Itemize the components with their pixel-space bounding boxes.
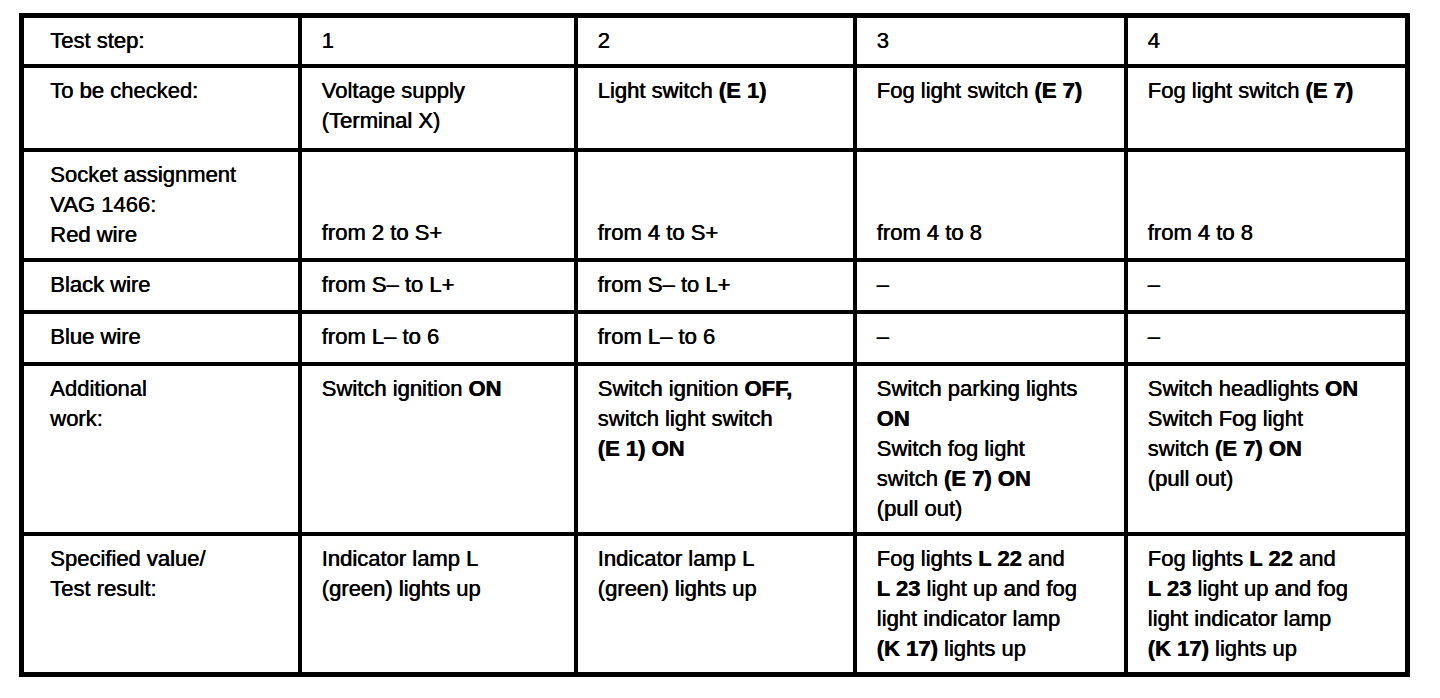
text-line: L 23 light up and fog [877, 574, 1118, 604]
text-line: Fog lights L 22 and [1148, 544, 1400, 574]
text: lights up [938, 636, 1026, 661]
text: switch [1148, 436, 1215, 461]
text: Switch fog light [877, 436, 1025, 461]
text: Additional [50, 376, 147, 401]
text: and [1022, 546, 1065, 571]
text-line: from L– to 6 [598, 322, 847, 352]
row-label-cell-additional-work: Additionalwork: [22, 364, 300, 534]
text-line: Fog light switch (E 7) [877, 76, 1118, 106]
emphasized-text: OFF, [744, 376, 792, 401]
text: from 2 to S+ [322, 220, 442, 245]
text-line: 4 [1148, 26, 1400, 56]
text: VAG 1466: [50, 192, 156, 217]
text: (pull out) [1148, 466, 1234, 491]
text: work: [50, 406, 103, 431]
value-cell-black-wire-step-2: from S– to L+ [576, 260, 855, 312]
text-line: (E 1) ON [598, 434, 847, 464]
emphasized-text: L 23 [877, 576, 921, 601]
text-line: light indicator lamp [1148, 604, 1400, 634]
value-cell-to-be-checked-step-1: Voltage supply(Terminal X) [300, 66, 576, 150]
row-label-cell-blue-wire: Blue wire [22, 312, 300, 364]
row-label-cell-black-wire: Black wire [22, 260, 300, 312]
text: lights up [1209, 636, 1297, 661]
text-line: switch (E 7) ON [877, 464, 1118, 494]
text: Switch parking lights [877, 376, 1078, 401]
text-line: 2 [598, 26, 847, 56]
text-line: (Terminal X) [322, 106, 568, 136]
text: Black wire [50, 272, 150, 297]
text-line: Black wire [50, 270, 292, 300]
text: (green) lights up [598, 576, 757, 601]
value-cell-black-wire-step-3: – [855, 260, 1126, 312]
text: from S– to L+ [598, 272, 731, 297]
text-line: work: [50, 404, 292, 434]
test-table-body: Test step:1234To be checked:Voltage supp… [22, 16, 1408, 675]
table-row-black-wire: Black wirefrom S– to L+from S– to L+–– [22, 260, 1408, 312]
text: (green) lights up [322, 576, 481, 601]
emphasized-text: (E 1) ON [598, 436, 685, 461]
text: light indicator lamp [877, 606, 1060, 631]
emphasized-text: (K 17) [1148, 636, 1209, 661]
emphasized-text: (E 7) ON [944, 466, 1031, 491]
text-line: Fog light switch (E 7) [1148, 76, 1400, 106]
text-line: Indicator lamp L [322, 544, 568, 574]
text: Fog lights [1148, 546, 1250, 571]
text-line: (pull out) [877, 494, 1118, 524]
text: 3 [877, 28, 889, 53]
row-label-cell-specified-value-test-result: Specified value/Test result: [22, 534, 300, 675]
emphasized-text: L 22 [1249, 546, 1293, 571]
value-cell-additional-work-step-1: Switch ignition ON [300, 364, 576, 534]
text: switch light switch [598, 406, 773, 431]
value-cell-specified-value-test-result-step-2: Indicator lamp L(green) lights up [576, 534, 855, 675]
value-cell-socket-assignment-red-wire-step-3: from 4 to 8 [855, 150, 1126, 260]
value-cell-blue-wire-step-3: – [855, 312, 1126, 364]
text: and [1293, 546, 1336, 571]
text-line: (K 17) lights up [1148, 634, 1400, 664]
text: Switch Fog light [1148, 406, 1303, 431]
text: from 4 to S+ [598, 220, 718, 245]
text: light up and fog [920, 576, 1077, 601]
text-line: Switch Fog light [1148, 404, 1400, 434]
value-cell-blue-wire-step-2: from L– to 6 [576, 312, 855, 364]
text: from 4 to 8 [877, 220, 982, 245]
text-line: (pull out) [1148, 464, 1400, 494]
text: Voltage supply [322, 78, 465, 103]
scanned-document-page: Test step:1234To be checked:Voltage supp… [0, 0, 1440, 698]
text-line: Switch headlights ON [1148, 374, 1400, 404]
value-cell-additional-work-step-2: Switch ignition OFF,switch light switch(… [576, 364, 855, 534]
text: Blue wire [50, 324, 140, 349]
text-line: from 4 to S+ [598, 218, 847, 248]
emphasized-text: (E 7) [1305, 78, 1353, 103]
value-cell-black-wire-step-4: – [1126, 260, 1408, 312]
emphasized-text: L 23 [1148, 576, 1192, 601]
text-line: ON [877, 404, 1118, 434]
text-line: – [1148, 270, 1400, 300]
text: Specified value/ [50, 546, 205, 571]
text: Test step: [50, 28, 144, 53]
text-line: Red wire [50, 220, 292, 250]
emphasized-text: (E 7) [1034, 78, 1082, 103]
text: Switch headlights [1148, 376, 1325, 401]
text: Fog light switch [877, 78, 1035, 103]
value-cell-to-be-checked-step-4: Fog light switch (E 7) [1126, 66, 1408, 150]
text: from L– to 6 [322, 324, 439, 349]
text-line: Switch fog light [877, 434, 1118, 464]
text: 2 [598, 28, 610, 53]
text: – [1148, 324, 1160, 349]
text-line: (K 17) lights up [877, 634, 1118, 664]
text: – [1148, 272, 1160, 297]
table-row-test-step: Test step:1234 [22, 16, 1408, 67]
text: Fog lights [877, 546, 979, 571]
value-cell-additional-work-step-3: Switch parking lightsONSwitch fog lights… [855, 364, 1126, 534]
text-line: from S– to L+ [322, 270, 568, 300]
emphasized-text: ON [468, 376, 501, 401]
text-line: 3 [877, 26, 1118, 56]
text-line: from 4 to 8 [877, 218, 1118, 248]
text: Test result: [50, 576, 156, 601]
text: – [877, 272, 889, 297]
row-label-cell-socket-assignment-red-wire: Socket assignmentVAG 1466:Red wire [22, 150, 300, 260]
table-row-blue-wire: Blue wirefrom L– to 6from L– to 6–– [22, 312, 1408, 364]
text-line: Light switch (E 1) [598, 76, 847, 106]
text-line: Additional [50, 374, 292, 404]
text: 1 [322, 28, 334, 53]
text-line: – [877, 322, 1118, 352]
text-line: Indicator lamp L [598, 544, 847, 574]
table-row-socket-assignment-red-wire: Socket assignmentVAG 1466:Red wirefrom 2… [22, 150, 1408, 260]
text: Indicator lamp L [322, 546, 479, 571]
text: Socket assignment [50, 162, 236, 187]
value-cell-test-step-step-3: 3 [855, 16, 1126, 67]
text-line: Switch parking lights [877, 374, 1118, 404]
value-cell-to-be-checked-step-3: Fog light switch (E 7) [855, 66, 1126, 150]
text: (Terminal X) [322, 108, 441, 133]
test-procedure-table: Test step:1234To be checked:Voltage supp… [19, 13, 1410, 677]
text-line: from L– to 6 [322, 322, 568, 352]
text-line: 1 [322, 26, 568, 56]
text-line: Socket assignment [50, 160, 292, 190]
emphasized-text: L 22 [978, 546, 1022, 571]
text-line: Fog lights L 22 and [877, 544, 1118, 574]
text-line: from S– to L+ [598, 270, 847, 300]
text-line: Switch ignition OFF, [598, 374, 847, 404]
text: (pull out) [877, 496, 963, 521]
text-line: VAG 1466: [50, 190, 292, 220]
value-cell-specified-value-test-result-step-1: Indicator lamp L(green) lights up [300, 534, 576, 675]
text: Switch ignition [598, 376, 745, 401]
text: switch [877, 466, 944, 491]
text-line: Test step: [50, 26, 292, 56]
text-line: L 23 light up and fog [1148, 574, 1400, 604]
value-cell-socket-assignment-red-wire-step-4: from 4 to 8 [1126, 150, 1408, 260]
text-line: Switch ignition ON [322, 374, 568, 404]
text: Fog light switch [1148, 78, 1306, 103]
text-line: from 4 to 8 [1148, 218, 1400, 248]
text: light indicator lamp [1148, 606, 1331, 631]
value-cell-test-step-step-2: 2 [576, 16, 855, 67]
row-label-cell-test-step: Test step: [22, 16, 300, 67]
value-cell-specified-value-test-result-step-4: Fog lights L 22 andL 23 light up and fog… [1126, 534, 1408, 675]
value-cell-socket-assignment-red-wire-step-1: from 2 to S+ [300, 150, 576, 260]
text: Light switch [598, 78, 719, 103]
value-cell-socket-assignment-red-wire-step-2: from 4 to S+ [576, 150, 855, 260]
text: Red wire [50, 222, 137, 247]
value-cell-test-step-step-1: 1 [300, 16, 576, 67]
text: from 4 to 8 [1148, 220, 1253, 245]
text-line: Specified value/ [50, 544, 292, 574]
emphasized-text: (K 17) [877, 636, 938, 661]
text: from L– to 6 [598, 324, 715, 349]
text-line: (green) lights up [322, 574, 568, 604]
emphasized-text: (E 1) [719, 78, 767, 103]
value-cell-blue-wire-step-4: – [1126, 312, 1408, 364]
row-label-cell-to-be-checked: To be checked: [22, 66, 300, 150]
text-line: switch (E 7) ON [1148, 434, 1400, 464]
text-line: – [1148, 322, 1400, 352]
text: from S– to L+ [322, 272, 455, 297]
value-cell-test-step-step-4: 4 [1126, 16, 1408, 67]
emphasized-text: ON [877, 406, 910, 431]
text-line: – [877, 270, 1118, 300]
text: To be checked: [50, 78, 198, 103]
table-row-additional-work: Additionalwork:Switch ignition ONSwitch … [22, 364, 1408, 534]
text-line: To be checked: [50, 76, 292, 106]
text: Switch ignition [322, 376, 469, 401]
value-cell-specified-value-test-result-step-3: Fog lights L 22 andL 23 light up and fog… [855, 534, 1126, 675]
value-cell-black-wire-step-1: from S– to L+ [300, 260, 576, 312]
text-line: light indicator lamp [877, 604, 1118, 634]
text-line: (green) lights up [598, 574, 847, 604]
text-line: Voltage supply [322, 76, 568, 106]
text: 4 [1148, 28, 1160, 53]
value-cell-additional-work-step-4: Switch headlights ONSwitch Fog lightswit… [1126, 364, 1408, 534]
table-row-specified-value-test-result: Specified value/Test result:Indicator la… [22, 534, 1408, 675]
text-line: Blue wire [50, 322, 292, 352]
text-line: switch light switch [598, 404, 847, 434]
emphasized-text: ON [1325, 376, 1358, 401]
text-line: Test result: [50, 574, 292, 604]
emphasized-text: (E 7) ON [1215, 436, 1302, 461]
value-cell-to-be-checked-step-2: Light switch (E 1) [576, 66, 855, 150]
value-cell-blue-wire-step-1: from L– to 6 [300, 312, 576, 364]
table-row-to-be-checked: To be checked:Voltage supply(Terminal X)… [22, 66, 1408, 150]
text: Indicator lamp L [598, 546, 755, 571]
text-line: from 2 to S+ [322, 218, 568, 248]
text: light up and fog [1191, 576, 1348, 601]
text: – [877, 324, 889, 349]
